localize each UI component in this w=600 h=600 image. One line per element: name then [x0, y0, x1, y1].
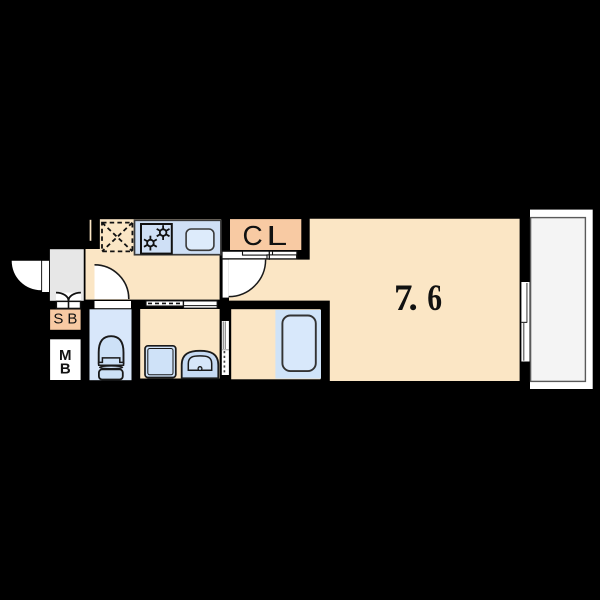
- svg-text:C: C: [243, 220, 263, 251]
- svg-text:L: L: [267, 220, 288, 251]
- svg-text:7.: 7.: [394, 278, 418, 319]
- svg-text:B: B: [60, 361, 71, 378]
- svg-text:6: 6: [427, 278, 442, 319]
- svg-text:SB: SB: [53, 311, 81, 328]
